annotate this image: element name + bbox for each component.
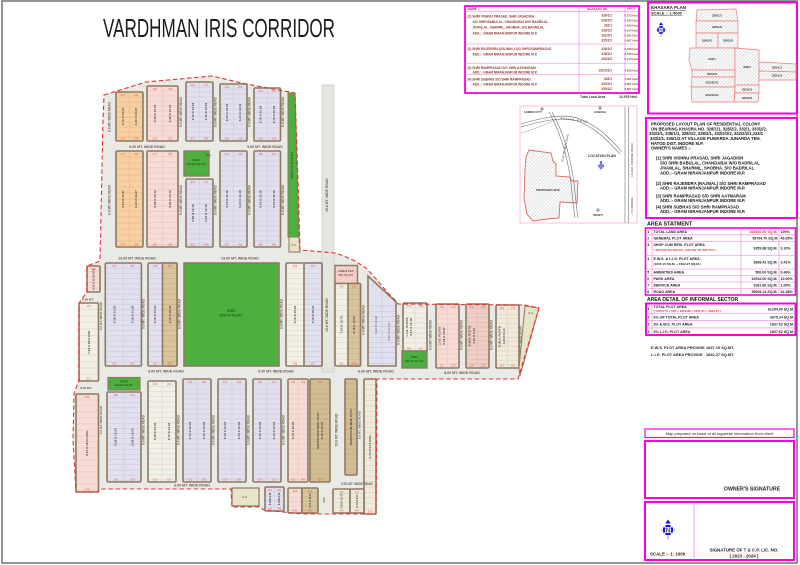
svg-text:153: 153 (481, 363, 486, 367)
svg-text:0.918 Hed.: 0.918 Hed. (625, 69, 639, 73)
svg-text:342: 342 (301, 380, 306, 384)
svg-text:256: 256 (168, 136, 173, 140)
svg-text:SHOP CUM RESI. PLOT AREA: SHOP CUM RESI. PLOT AREA (654, 243, 706, 247)
svg-text:0.753 Hed.: 0.753 Hed. (625, 13, 639, 17)
svg-text:494: 494 (87, 304, 92, 308)
svg-text:9.0 MT. WIDE ROAD: 9.0 MT. WIDE ROAD (281, 96, 285, 127)
svg-text:284: 284 (204, 136, 209, 140)
svg-text:( 2023 - 2024 ): ( 2023 - 2024 ) (730, 554, 759, 559)
svg-text:OWNER'S NAMES :-: OWNER'S NAMES :- (651, 146, 692, 151)
svg-text:585: 585 (168, 361, 173, 365)
svg-text:459: 459 (258, 152, 263, 156)
svg-text:557: 557 (153, 361, 158, 365)
svg-text:335/1/1: 335/1/1 (772, 66, 783, 70)
svg-text:9.0 MT. WIDE ROAD: 9.0 MT. WIDE ROAD (397, 314, 401, 345)
svg-text:4.20 X 9.16: 4.20 X 9.16 (472, 328, 476, 344)
svg-text:PARK 473.43 SQ.MT.: PARK 473.43 SQ.MT. (290, 151, 294, 178)
svg-text:167: 167 (500, 363, 505, 367)
svg-text:0.46%: 0.46% (781, 271, 792, 275)
svg-text:9.0 MT. WIDE ROAD: 9.0 MT. WIDE ROAD (280, 298, 284, 329)
svg-text:3% E.W.S. PLOT AREA: 3% E.W.S. PLOT AREA (654, 323, 693, 327)
svg-text:ADD.:- GRAM NIRANJANPUR INDORE: ADD.:- GRAM NIRANJANPUR INDORE M.P. (473, 31, 538, 35)
svg-text:6.10 X 16.67: 6.10 X 16.67 (121, 190, 125, 208)
svg-text:382: 382 (153, 242, 158, 246)
svg-text:REWTI: REWTI (593, 213, 603, 217)
svg-text:ADD.:- GRAM NIRANJANPUR INDORE: ADD.:- GRAM NIRANJANPUR INDORE M.P. (473, 71, 538, 75)
svg-text:335/1/2: 335/1/2 (601, 87, 612, 91)
svg-text:6.10 X 12.19: 6.10 X 12.19 (188, 421, 192, 439)
svg-text:697: 697 (419, 346, 424, 350)
svg-text:TOTAL LAND AREA: TOTAL LAND AREA (654, 230, 688, 234)
svg-text:9.0 MT. WIDE ROAD: 9.0 MT. WIDE ROAD (460, 319, 464, 350)
svg-text:SIGNATURE OF T & C.P. LIC. NO.: SIGNATURE OF T & C.P. LIC. NO. (710, 548, 779, 553)
svg-text:400.31 SQ.MT.: 400.31 SQ.MT. (405, 359, 424, 363)
svg-text:0.716 Hed.: 0.716 Hed. (625, 57, 639, 61)
svg-text:PARK AREA: PARK AREA (654, 277, 675, 281)
svg-text:AREA STATMENT: AREA STATMENT (647, 222, 693, 228)
svg-text:AREA DETAIL OF INFORMAL SECTOR: AREA DETAIL OF INFORMAL SECTOR (647, 297, 739, 303)
svg-text:15.0 MT. WIDE ROAD: 15.0 MT. WIDE ROAD (325, 178, 329, 212)
svg-text:6: 6 (647, 277, 649, 281)
svg-text:(4) SHRI SUBHAS S/O SHRI RAMPR: (4) SHRI SUBHAS S/O SHRI RAMPRASAD (468, 78, 532, 82)
svg-text:7.63 X 13.72: 7.63 X 13.72 (340, 493, 344, 508)
svg-text:431: 431 (225, 152, 230, 156)
svg-text:S/O SHRI BABULAL, CHANDABAI W/: S/O SHRI BABULAL, CHANDABAI W/O BADRILAL (473, 20, 549, 24)
svg-text:391: 391 (277, 488, 282, 492)
svg-text:356: 356 (318, 380, 323, 384)
svg-text:6.10 X 13.24: 6.10 X 13.24 (320, 421, 324, 439)
svg-text:181: 181 (511, 363, 516, 367)
svg-text:592: 592 (293, 264, 298, 268)
svg-text:6.10 X 12.19: 6.10 X 12.19 (272, 190, 276, 208)
svg-text:307: 307 (258, 477, 263, 481)
svg-text:3.10%: 3.10% (781, 247, 792, 251)
svg-text:6.10 X 12.19: 6.10 X 12.19 (387, 323, 391, 341)
svg-text:293: 293 (237, 477, 242, 481)
svg-text:332/2/2/1: 332/2/2/1 (706, 81, 719, 85)
svg-text:328: 328 (291, 380, 296, 384)
svg-text:620: 620 (311, 264, 316, 268)
svg-text:195: 195 (113, 477, 118, 481)
svg-text:6.10 X 12.19: 6.10 X 12.19 (237, 421, 241, 439)
svg-text:7.63 X 20.0 AVG.: 7.63 X 20.0 AVG. (87, 330, 91, 354)
svg-text:6.10 X 12.19: 6.10 X 12.19 (272, 421, 276, 439)
svg-text:6% OF TOTAL PLOT AREA: 6% OF TOTAL PLOT AREA (654, 315, 700, 319)
svg-text:223: 223 (153, 477, 158, 481)
svg-text:35008.14 SQ.M.: 35008.14 SQ.M. (751, 290, 777, 294)
svg-text:E.W.S. & L.I.G. PLOT AREA: E.W.S. & L.I.G. PLOT AREA (654, 257, 701, 261)
svg-text:209: 209 (130, 477, 135, 481)
svg-text:0.987 Hed.: 0.987 Hed. (625, 82, 639, 86)
svg-text:ADD.:- GRAM NIRANJANPUR INDORE: ADD.:- GRAM NIRANJANPUR INDORE M.P. (660, 186, 745, 191)
svg-text:6.10 X 12.19: 6.10 X 12.19 (259, 190, 263, 208)
svg-text:GENERAL PLOT AREA: GENERAL PLOT AREA (654, 237, 694, 241)
svg-text:ROAD AREA: ROAD AREA (654, 290, 676, 294)
svg-text:6.10 X 13.24: 6.10 X 13.24 (291, 421, 295, 439)
svg-text:6.10 X 10.67: 6.10 X 10.67 (121, 107, 125, 125)
svg-text:207: 207 (121, 93, 126, 97)
svg-text:(3) SHRI RAMPRASAD S/O SHRI AA: (3) SHRI RAMPRASAD S/O SHRI AATMARAM (468, 66, 537, 70)
svg-text:B.A.: B.A. (206, 153, 211, 157)
svg-text:6.00 MT. WIDE ROAD: 6.00 MT. WIDE ROAD (358, 370, 394, 374)
svg-text:3359.88 SQ.M.: 3359.88 SQ.M. (753, 247, 777, 251)
svg-text:3% L.I.G. PLOT AREA: 3% L.I.G. PLOT AREA (654, 330, 691, 334)
svg-text:( 53704.70 + 500 + 3359.88 + 1: ( 53704.70 + 500 + 3359.88 + 1847.15 + 1… (654, 309, 721, 313)
svg-text:405: 405 (293, 489, 298, 493)
svg-text:9.0 MT. WIDE ROAD: 9.0 MT. WIDE ROAD (490, 319, 494, 350)
svg-text:473: 473 (272, 152, 277, 156)
svg-text:→ TO INDORE: → TO INDORE (630, 197, 634, 216)
svg-text:4.20 X 9.14: 4.20 X 9.14 (502, 328, 506, 344)
svg-text:9.0 MT. WIDE ROAD: 9.0 MT. WIDE ROAD (247, 414, 251, 445)
svg-text:LEMON CITY: LEMON CITY (524, 110, 542, 114)
svg-text:6.10 X 13.24: 6.10 X 13.24 (153, 305, 157, 323)
svg-text:ADD.:- GRAM NIRANJANPUR INDORE: ADD.:- GRAM NIRANJANPUR INDORE M.P. (660, 209, 745, 214)
svg-text:111: 111 (440, 363, 444, 367)
svg-text:332/1: 332/1 (708, 57, 716, 61)
svg-text:340: 340 (272, 136, 277, 140)
svg-text:9.0 MT. WIDE ROAD: 9.0 MT. WIDE ROAD (248, 96, 252, 127)
svg-text:13.00 MT. WIDE ROAD: 13.00 MT. WIDE ROAD (221, 257, 259, 261)
svg-text:132: 132 (470, 305, 475, 309)
svg-text:6.10 X 13.24: 6.10 X 13.24 (167, 422, 171, 440)
svg-text:235: 235 (153, 87, 158, 91)
svg-text:SHOPS CUM RESI. PLOT: SHOPS CUM RESI. PLOT (349, 409, 353, 446)
svg-text:6.10 X 12.19: 6.10 X 12.19 (204, 204, 208, 222)
svg-text:9.00 MT. WIDE ROAD: 9.00 MT. WIDE ROAD (341, 482, 373, 486)
svg-text:6.10 X 12.19: 6.10 X 12.19 (204, 102, 208, 120)
svg-text:108160.00 SQ.M.: 108160.00 SQ.M. (749, 230, 777, 234)
svg-text:368: 368 (134, 242, 139, 246)
svg-text:400.20 SQ.MT.: 400.20 SQ.MT. (115, 383, 134, 387)
svg-text:221: 221 (134, 93, 139, 97)
svg-text:6.70 X 9.14 AVG.: 6.70 X 9.14 AVG. (368, 434, 372, 458)
svg-text:8.00 MT.: 8.00 MT. (80, 386, 92, 390)
svg-text:6.10 X 12.19: 6.10 X 12.19 (225, 190, 229, 208)
svg-text:61254.00 SQ.M.: 61254.00 SQ.M. (768, 308, 794, 312)
svg-text:6.10 X 10.67: 6.10 X 10.67 (134, 107, 138, 125)
svg-text:9.0 MT. WIDE ROAD: 9.0 MT. WIDE ROAD (142, 298, 146, 329)
svg-text:333/2/1: 333/2/1 (601, 82, 612, 86)
svg-text:5.18 X 13.24: 5.18 X 13.24 (114, 428, 118, 446)
svg-text:AREA: AREA (627, 7, 636, 11)
svg-text:347: 347 (121, 152, 126, 156)
svg-text:312: 312 (238, 136, 243, 140)
svg-text:KHASARA NO.: KHASARA NO. (587, 7, 608, 11)
svg-text:9.00 MT. WIDE ROAD: 9.00 MT. WIDE ROAD (129, 145, 165, 149)
svg-text:258: 258 (202, 380, 207, 384)
svg-text:PROPOSED SITE: PROPOSED SITE (536, 188, 560, 192)
svg-text:SCALE :- 1: 1000: SCALE :- 1: 1000 (650, 552, 686, 557)
svg-text:375: 375 (153, 152, 158, 156)
svg-text:6.10 X 12.19: 6.10 X 12.19 (259, 105, 263, 123)
svg-text:328/2/2: 328/2/2 (723, 39, 734, 43)
svg-text:412: 412 (293, 508, 298, 512)
svg-text:332/2/1: 332/2/1 (707, 72, 718, 76)
svg-text:8.0 MT. WIDE ROAD: 8.0 MT. WIDE ROAD (142, 414, 146, 445)
svg-text:515: 515 (85, 487, 90, 491)
svg-text:305: 305 (238, 85, 243, 89)
svg-text:396: 396 (168, 242, 173, 246)
svg-text:0.607 Hed.: 0.607 Hed. (625, 87, 639, 91)
svg-text:6.10 X 12.19: 6.10 X 12.19 (409, 318, 413, 336)
svg-text:4: 4 (647, 257, 649, 261)
svg-text:6.10 X 15.24: 6.10 X 15.24 (311, 305, 315, 323)
svg-text:333/2/1: 333/2/1 (742, 88, 753, 92)
svg-text:(1847.15 SQ.M. + 1842.27 SQ.M.: (1847.15 SQ.M. + 1842.27 SQ.M.) (654, 262, 701, 266)
svg-text:146: 146 (481, 305, 486, 309)
svg-text:15.0 MT. WIDE ROAD: 15.0 MT. WIDE ROAD (335, 413, 339, 446)
svg-text:543: 543 (130, 361, 135, 365)
svg-text:335/1/1: 335/1/1 (601, 38, 612, 42)
svg-text:S.A.: S.A. (528, 311, 534, 315)
svg-text:627: 627 (311, 361, 316, 365)
svg-text:466: 466 (258, 242, 263, 246)
svg-text:328/1/2: 328/1/2 (601, 47, 612, 51)
svg-text:599: 599 (293, 361, 298, 365)
svg-text:ALWASA: ALWASA (594, 110, 607, 114)
svg-text:6.10 X 15.24: 6.10 X 15.24 (168, 305, 172, 323)
svg-text:6.10 X 12.19: 6.10 X 12.19 (272, 105, 276, 123)
svg-text:286: 286 (237, 380, 242, 384)
svg-text:S.A.: S.A. (242, 495, 248, 499)
svg-text:3: 3 (648, 323, 650, 327)
svg-text:9.0 MT. WIDE ROAD: 9.0 MT. WIDE ROAD (362, 304, 366, 335)
svg-text:( S/R 539 TO S/R 557, S/R 561: ( S/R 539 TO S/R 557, S/R 561 TO S/R 573… (654, 248, 716, 252)
svg-text:9099.44 SQ.MT.: 9099.44 SQ.MT. (219, 314, 242, 318)
svg-text:440: 440 (339, 508, 344, 512)
svg-text:6.70 X 9.14: 6.70 X 9.14 (355, 494, 359, 508)
svg-text:263: 263 (191, 83, 196, 87)
svg-text:Map prepared on basis of all l: Map prepared on basis of all legal/site … (666, 431, 775, 436)
svg-text:TOTAL PLOT AREA: TOTAL PLOT AREA (654, 305, 688, 309)
svg-text:1: 1 (648, 307, 650, 311)
svg-text:332/1: 332/1 (604, 23, 612, 27)
svg-text:9.0 MT. WIDE ROAD: 9.0 MT. WIDE ROAD (429, 319, 433, 350)
svg-text:550: 550 (153, 264, 158, 268)
svg-text:5.18 X 13.24: 5.18 X 13.24 (130, 305, 134, 323)
svg-text:5.18 X 10.67: 5.18 X 10.67 (442, 327, 446, 345)
svg-text:160: 160 (500, 306, 505, 310)
svg-text:9.0 MT. WIDE ROAD: 9.0 MT. WIDE ROAD (248, 184, 252, 215)
svg-text:0.728 Hed.: 0.728 Hed. (625, 47, 639, 51)
svg-text:683: 683 (407, 346, 412, 350)
svg-text:0.291 Hed.: 0.291 Hed. (625, 33, 639, 37)
svg-text:419: 419 (308, 489, 313, 493)
svg-text:522: 522 (112, 264, 117, 268)
svg-text:OWNER'S SIGNATURE: OWNER'S SIGNATURE (724, 487, 781, 493)
svg-text:332/2/2/1: 332/2/2/1 (599, 69, 613, 73)
svg-text:445: 445 (238, 152, 243, 156)
svg-text:0.192 Hed.: 0.192 Hed. (625, 18, 639, 22)
svg-text:S.A.: S.A. (291, 243, 297, 247)
svg-text:9.0 MT. WIDE ROAD: 9.0 MT. WIDE ROAD (281, 184, 285, 215)
svg-text:249: 249 (168, 87, 173, 91)
svg-text:333/1: 333/1 (743, 65, 751, 69)
svg-text:335/1/2: 335/1/2 (772, 74, 783, 78)
svg-text:NAME :-: NAME :- (468, 7, 480, 11)
svg-text:328/1/1: 328/1/1 (712, 14, 723, 18)
svg-text:6.10 X 12.19 AVG.: 6.10 X 12.19 AVG. (92, 268, 96, 290)
svg-text:6.79 X 15.24: 6.79 X 15.24 (293, 305, 297, 323)
svg-text:53704.70 SQ.M: 53704.70 SQ.M (752, 237, 777, 241)
svg-text:2: 2 (648, 315, 650, 319)
svg-text:9.0 MT. WIDE ROAD: 9.0 MT. WIDE ROAD (282, 414, 286, 445)
svg-text:641: 641 (339, 361, 344, 365)
svg-text:300: 300 (258, 380, 263, 384)
svg-text:10916.00 SQ.M.: 10916.00 SQ.M. (751, 277, 777, 281)
svg-text:49.65%: 49.65% (781, 237, 794, 241)
svg-text:1842.27 SQ.MT.: 1842.27 SQ.MT. (706, 352, 734, 357)
svg-text:349: 349 (301, 477, 306, 481)
svg-text:9.0 MT. WIDE ROAD: 9.0 MT. WIDE ROAD (99, 405, 103, 434)
svg-text:6.49 X 13.72: 6.49 X 13.72 (168, 104, 172, 122)
svg-text:237: 237 (167, 477, 172, 481)
svg-text:508: 508 (85, 395, 90, 399)
svg-text:333/2/2: 333/2/2 (601, 28, 612, 32)
svg-text:244: 244 (188, 380, 193, 384)
svg-text:1837.62 SQ.M.: 1837.62 SQ.M. (770, 323, 794, 327)
svg-text:E.W.S. PLOT AREA PROVIDE: E.W.S. PLOT AREA PROVIDE (651, 345, 705, 350)
svg-text:6.50 X 12.19: 6.50 X 12.19 (191, 204, 195, 222)
svg-text:SCALE :- 1:4000: SCALE :- 1:4000 (651, 11, 683, 16)
svg-text:277: 277 (204, 83, 209, 87)
svg-text:1.401 Hed.: 1.401 Hed. (625, 77, 639, 81)
svg-text:0.746 Hed.: 0.746 Hed. (625, 52, 639, 56)
svg-text:AMENITIES AREA: AMENITIES AREA (654, 271, 685, 275)
svg-text:328/1/2: 328/1/2 (712, 25, 723, 29)
svg-text:370: 370 (368, 509, 373, 513)
svg-text:9.0 MT. WIDE ROAD: 9.0 MT. WIDE ROAD (108, 184, 112, 215)
svg-text:VARDHMAN IRIS CORRIDOR: VARDHMAN IRIS CORRIDOR (103, 13, 335, 43)
svg-text:(1) SHRI VISHNU PRASAD, SHRI J: (1) SHRI VISHNU PRASAD, SHRI JAGADISH (468, 15, 535, 19)
svg-text:5.18 X 13.24: 5.18 X 13.24 (112, 305, 116, 323)
svg-text:433: 433 (339, 490, 344, 494)
svg-text:13.00 MT. WIDE ROAD: 13.00 MT. WIDE ROAD (118, 257, 156, 261)
svg-text:ADD.:- GRAM NIRANJANPUR INDORE: ADD.:- GRAM NIRANJANPUR INDORE M.P. (473, 53, 538, 57)
svg-text:7: 7 (647, 284, 649, 288)
svg-text:410: 410 (191, 242, 196, 246)
svg-text:6.10 X 12.19: 6.10 X 12.19 (191, 102, 195, 120)
svg-text:328/1/1: 328/1/1 (601, 13, 612, 17)
svg-text:LUJAR - INDORE ROAD: LUJAR - INDORE ROAD (630, 143, 634, 177)
svg-text:100%: 100% (781, 230, 791, 234)
svg-text:104: 104 (440, 305, 445, 309)
svg-text:1.920 Hed.: 1.920 Hed. (625, 23, 639, 27)
svg-text:361: 361 (134, 152, 139, 156)
svg-text:265: 265 (202, 477, 207, 481)
svg-text:5.49 X 13.72: 5.49 X 13.72 (153, 104, 157, 122)
svg-text:272: 272 (223, 380, 228, 384)
svg-text:1.00%: 1.00% (781, 284, 792, 288)
svg-text:6.10X12.19: 6.10X12.19 (278, 492, 281, 505)
svg-text:398: 398 (277, 506, 282, 510)
svg-text:319: 319 (258, 89, 263, 93)
svg-text:4: 4 (648, 330, 650, 334)
svg-text:332/2/1: 332/2/1 (601, 33, 612, 37)
svg-text:9.3 MT. WIDE ROAD: 9.3 MT. WIDE ROAD (179, 184, 183, 215)
svg-text:5: 5 (647, 271, 649, 275)
svg-text:662: 662 (352, 285, 357, 289)
svg-text:501: 501 (87, 376, 92, 380)
svg-text:9.49 X 13.72: 9.49 X 13.72 (168, 190, 172, 208)
svg-text:188: 188 (113, 393, 118, 397)
svg-text:480: 480 (272, 242, 277, 246)
svg-text:214: 214 (121, 136, 126, 140)
svg-text:5.18 X 13.24: 5.18 X 13.24 (153, 422, 157, 440)
svg-text:6.10 X 12.19: 6.10 X 12.19 (374, 316, 378, 334)
svg-text:578: 578 (168, 264, 173, 268)
svg-text:L.I.G. PLOT AREA PROVIDE: L.I.G. PLOT AREA PROVIDE (651, 352, 703, 357)
svg-text:332/2/2/2: 332/2/2/2 (706, 93, 719, 97)
svg-text:321: 321 (272, 477, 277, 481)
svg-text:139: 139 (470, 363, 475, 367)
svg-text:KHASARA PLAN: KHASARA PLAN (651, 5, 686, 10)
svg-text:9.0 MT. WIDE ROAD: 9.0 MT. WIDE ROAD (178, 298, 182, 329)
svg-text:326: 326 (258, 136, 263, 140)
svg-text:6.00 MT. WIDE ROAD: 6.00 MT. WIDE ROAD (174, 484, 210, 488)
svg-text:1: 1 (647, 230, 649, 234)
svg-text:403: 403 (191, 180, 196, 184)
svg-text:3.41%: 3.41% (781, 260, 792, 264)
svg-text:6.10 X 12.19: 6.10 X 12.19 (238, 103, 242, 121)
svg-text:230: 230 (167, 382, 172, 386)
svg-text:500 SQ.MT.: 500 SQ.MT. (338, 273, 353, 277)
svg-text:279: 279 (223, 477, 228, 481)
svg-text:6.0 MT. WIDE ROAD: 6.0 MT. WIDE ROAD (108, 101, 112, 132)
svg-text:SERVICE AREA: SERVICE AREA (654, 284, 681, 288)
svg-text:3689.42 SQ.M.: 3689.42 SQ.M. (753, 260, 777, 264)
svg-text:9.0 MT. WIDE ROAD: 9.0 MT. WIDE ROAD (214, 184, 218, 215)
svg-text:6.10 X 12.19: 6.10 X 12.19 (202, 421, 206, 439)
svg-text:447: 447 (355, 490, 360, 494)
svg-text:32.38%: 32.38% (781, 290, 794, 294)
svg-text:ADD.:- GRAM NIRANJANPUR INDORE: ADD.:- GRAM NIRANJANPUR INDORE M.P. (473, 83, 538, 87)
svg-text:LOCATION PLAN: LOCATION PLAN (588, 154, 616, 158)
svg-text:314: 314 (272, 380, 277, 384)
svg-text:6.10 X 12.19: 6.10 X 12.19 (238, 190, 242, 208)
svg-text:426: 426 (308, 508, 313, 512)
svg-text:3675.24 SQ.M.: 3675.24 SQ.M. (770, 315, 794, 319)
svg-text:6.10 X 12.19: 6.10 X 12.19 (258, 421, 262, 439)
svg-text:174: 174 (511, 306, 516, 310)
svg-text:9.0 MT. WIDE ROAD: 9.0 MT. WIDE ROAD (212, 414, 216, 445)
svg-text:Total Land Area: Total Land Area (580, 95, 605, 99)
svg-text:2: 2 (647, 237, 649, 241)
svg-text:JIVANLAL, SHARMIL, SHOBHA, S/O: JIVANLAL, SHARMIL, SHOBHA, S/O BADRILAL (473, 26, 545, 30)
svg-text:6.79 X 15.06: 6.79 X 15.06 (352, 316, 356, 333)
svg-text:487: 487 (91, 267, 96, 271)
svg-text:333/1: 333/1 (604, 77, 612, 81)
svg-text:500.00 SQ.M.: 500.00 SQ.M. (755, 271, 777, 275)
svg-text:1081.86 SQ.M.: 1081.86 SQ.M. (753, 284, 777, 288)
svg-text:10.978 Hed.: 10.978 Hed. (619, 95, 638, 99)
svg-text:15.2: 15.2 (322, 497, 326, 503)
svg-text:PARK: PARK (227, 309, 236, 313)
svg-text:669: 669 (352, 361, 357, 365)
svg-text:10.00%: 10.00% (781, 277, 794, 281)
svg-text:ADD.:- GRAM NIRANJANPUR INDORE: ADD.:- GRAM NIRANJANPUR INDORE M.P. (660, 198, 745, 203)
svg-text:5.49 X 13.72: 5.49 X 13.72 (153, 190, 157, 208)
svg-text:363: 363 (318, 477, 323, 481)
svg-text:332/2/2: 332/2/2 (601, 57, 612, 61)
svg-text:1847.15 SQ.MT.: 1847.15 SQ.MT. (706, 345, 734, 350)
svg-text:454: 454 (355, 508, 360, 512)
svg-text:377: 377 (268, 488, 273, 492)
svg-text:270: 270 (191, 136, 196, 140)
svg-text:(2) SHRI RAJENDRA (RAJMAL) S/O: (2) SHRI RAJENDRA (RAJMAL) S/O SHRI RAMP… (468, 47, 552, 51)
svg-text:202: 202 (130, 393, 135, 397)
